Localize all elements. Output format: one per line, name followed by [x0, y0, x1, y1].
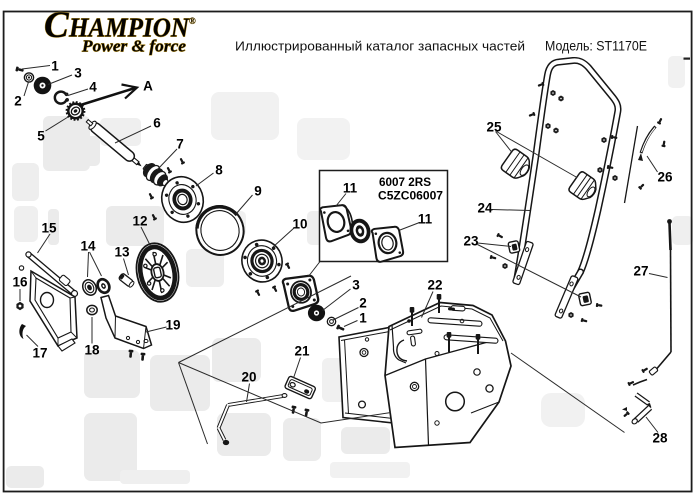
- svg-text:15: 15: [41, 221, 57, 236]
- svg-text:24: 24: [477, 201, 493, 216]
- svg-text:25: 25: [486, 120, 502, 135]
- svg-text:Иллюстрированный каталог запас: Иллюстрированный каталог запасных частей: [235, 39, 525, 54]
- svg-text:C: C: [44, 5, 70, 46]
- svg-text:C5ZC06007: C5ZC06007: [378, 191, 443, 203]
- svg-text:5: 5: [37, 129, 45, 144]
- svg-text:26: 26: [657, 170, 673, 185]
- svg-text:28: 28: [652, 431, 668, 446]
- svg-text:A: A: [143, 79, 153, 94]
- svg-text:17: 17: [32, 346, 47, 361]
- svg-text:13: 13: [114, 245, 130, 260]
- svg-text:11: 11: [418, 212, 433, 227]
- svg-text:27: 27: [633, 264, 648, 279]
- svg-text:12: 12: [132, 214, 147, 229]
- svg-text:®: ®: [189, 16, 196, 26]
- svg-text:2: 2: [14, 94, 22, 109]
- svg-text:2: 2: [359, 296, 367, 311]
- svg-text:3: 3: [352, 278, 360, 293]
- svg-text:Модель: ST1170E: Модель: ST1170E: [545, 39, 647, 54]
- svg-text:11: 11: [343, 181, 358, 196]
- svg-text:Power & force: Power & force: [81, 37, 186, 56]
- svg-text:8: 8: [215, 163, 223, 178]
- svg-text:23: 23: [463, 234, 479, 249]
- svg-text:6007 2RS: 6007 2RS: [379, 177, 431, 189]
- svg-text:20: 20: [241, 370, 256, 385]
- svg-text:10: 10: [292, 217, 307, 232]
- svg-text:4: 4: [89, 80, 97, 95]
- svg-text:14: 14: [80, 239, 96, 254]
- svg-text:1: 1: [359, 311, 367, 326]
- svg-text:3: 3: [74, 66, 82, 81]
- svg-text:19: 19: [165, 318, 180, 333]
- svg-text:1: 1: [51, 59, 59, 74]
- svg-text:22: 22: [427, 278, 442, 293]
- svg-text:7: 7: [176, 137, 184, 152]
- svg-text:21: 21: [294, 344, 310, 359]
- svg-text:18: 18: [84, 343, 100, 358]
- svg-text:9: 9: [254, 184, 262, 199]
- svg-text:6: 6: [153, 116, 161, 131]
- svg-text:16: 16: [12, 275, 28, 290]
